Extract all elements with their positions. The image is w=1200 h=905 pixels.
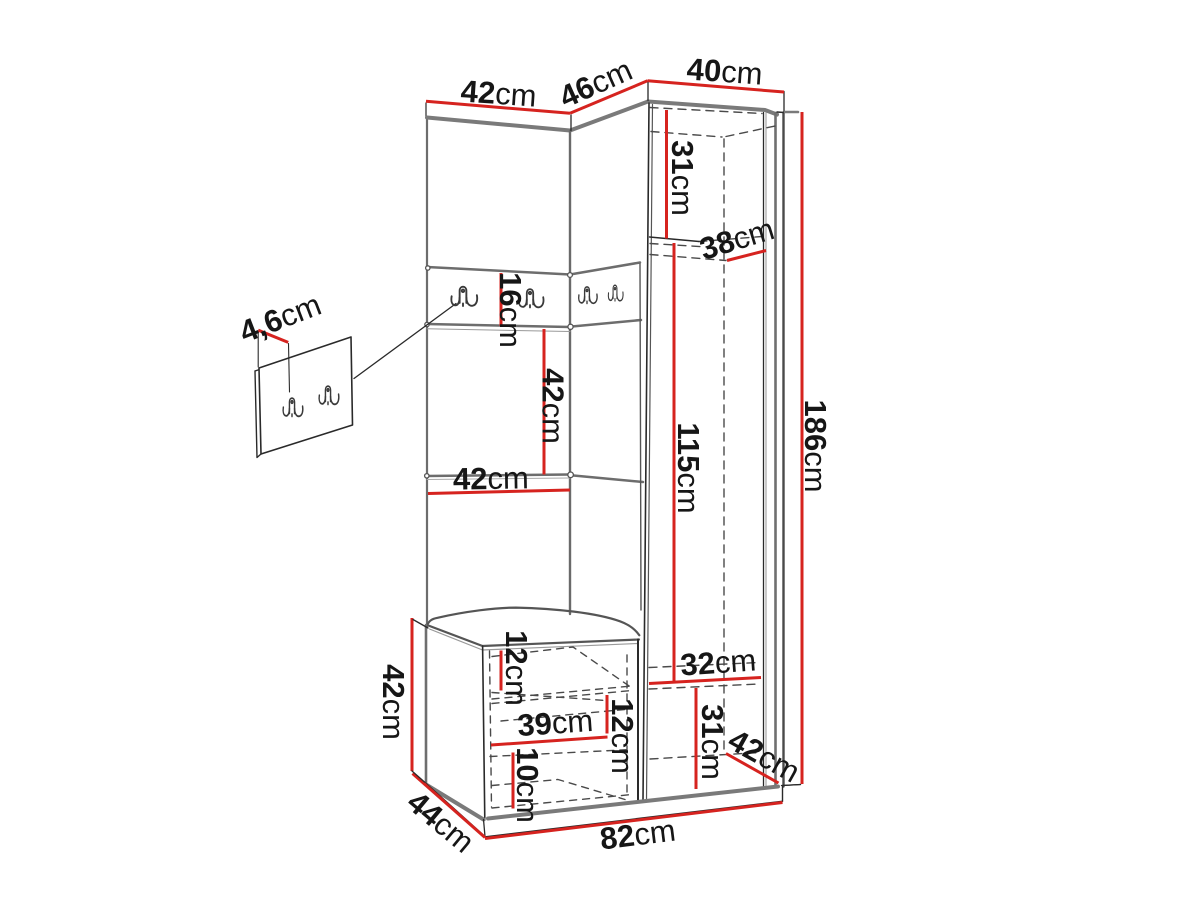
svg-text:186cm: 186cm — [798, 399, 833, 492]
svg-text:12cm: 12cm — [605, 698, 640, 774]
svg-text:115cm: 115cm — [671, 422, 706, 513]
svg-text:42cm: 42cm — [453, 460, 529, 496]
svg-text:40cm: 40cm — [686, 51, 764, 91]
svg-text:32cm: 32cm — [679, 642, 757, 682]
svg-text:42cm: 42cm — [536, 368, 571, 444]
svg-text:10cm: 10cm — [510, 747, 545, 823]
svg-text:16cm: 16cm — [493, 272, 528, 348]
svg-text:39cm: 39cm — [516, 703, 594, 743]
svg-text:31cm: 31cm — [665, 140, 700, 216]
svg-text:42cm: 42cm — [376, 664, 411, 740]
svg-text:31cm: 31cm — [695, 704, 730, 780]
svg-text:12cm: 12cm — [499, 630, 534, 706]
svg-text:42cm: 42cm — [460, 73, 538, 113]
